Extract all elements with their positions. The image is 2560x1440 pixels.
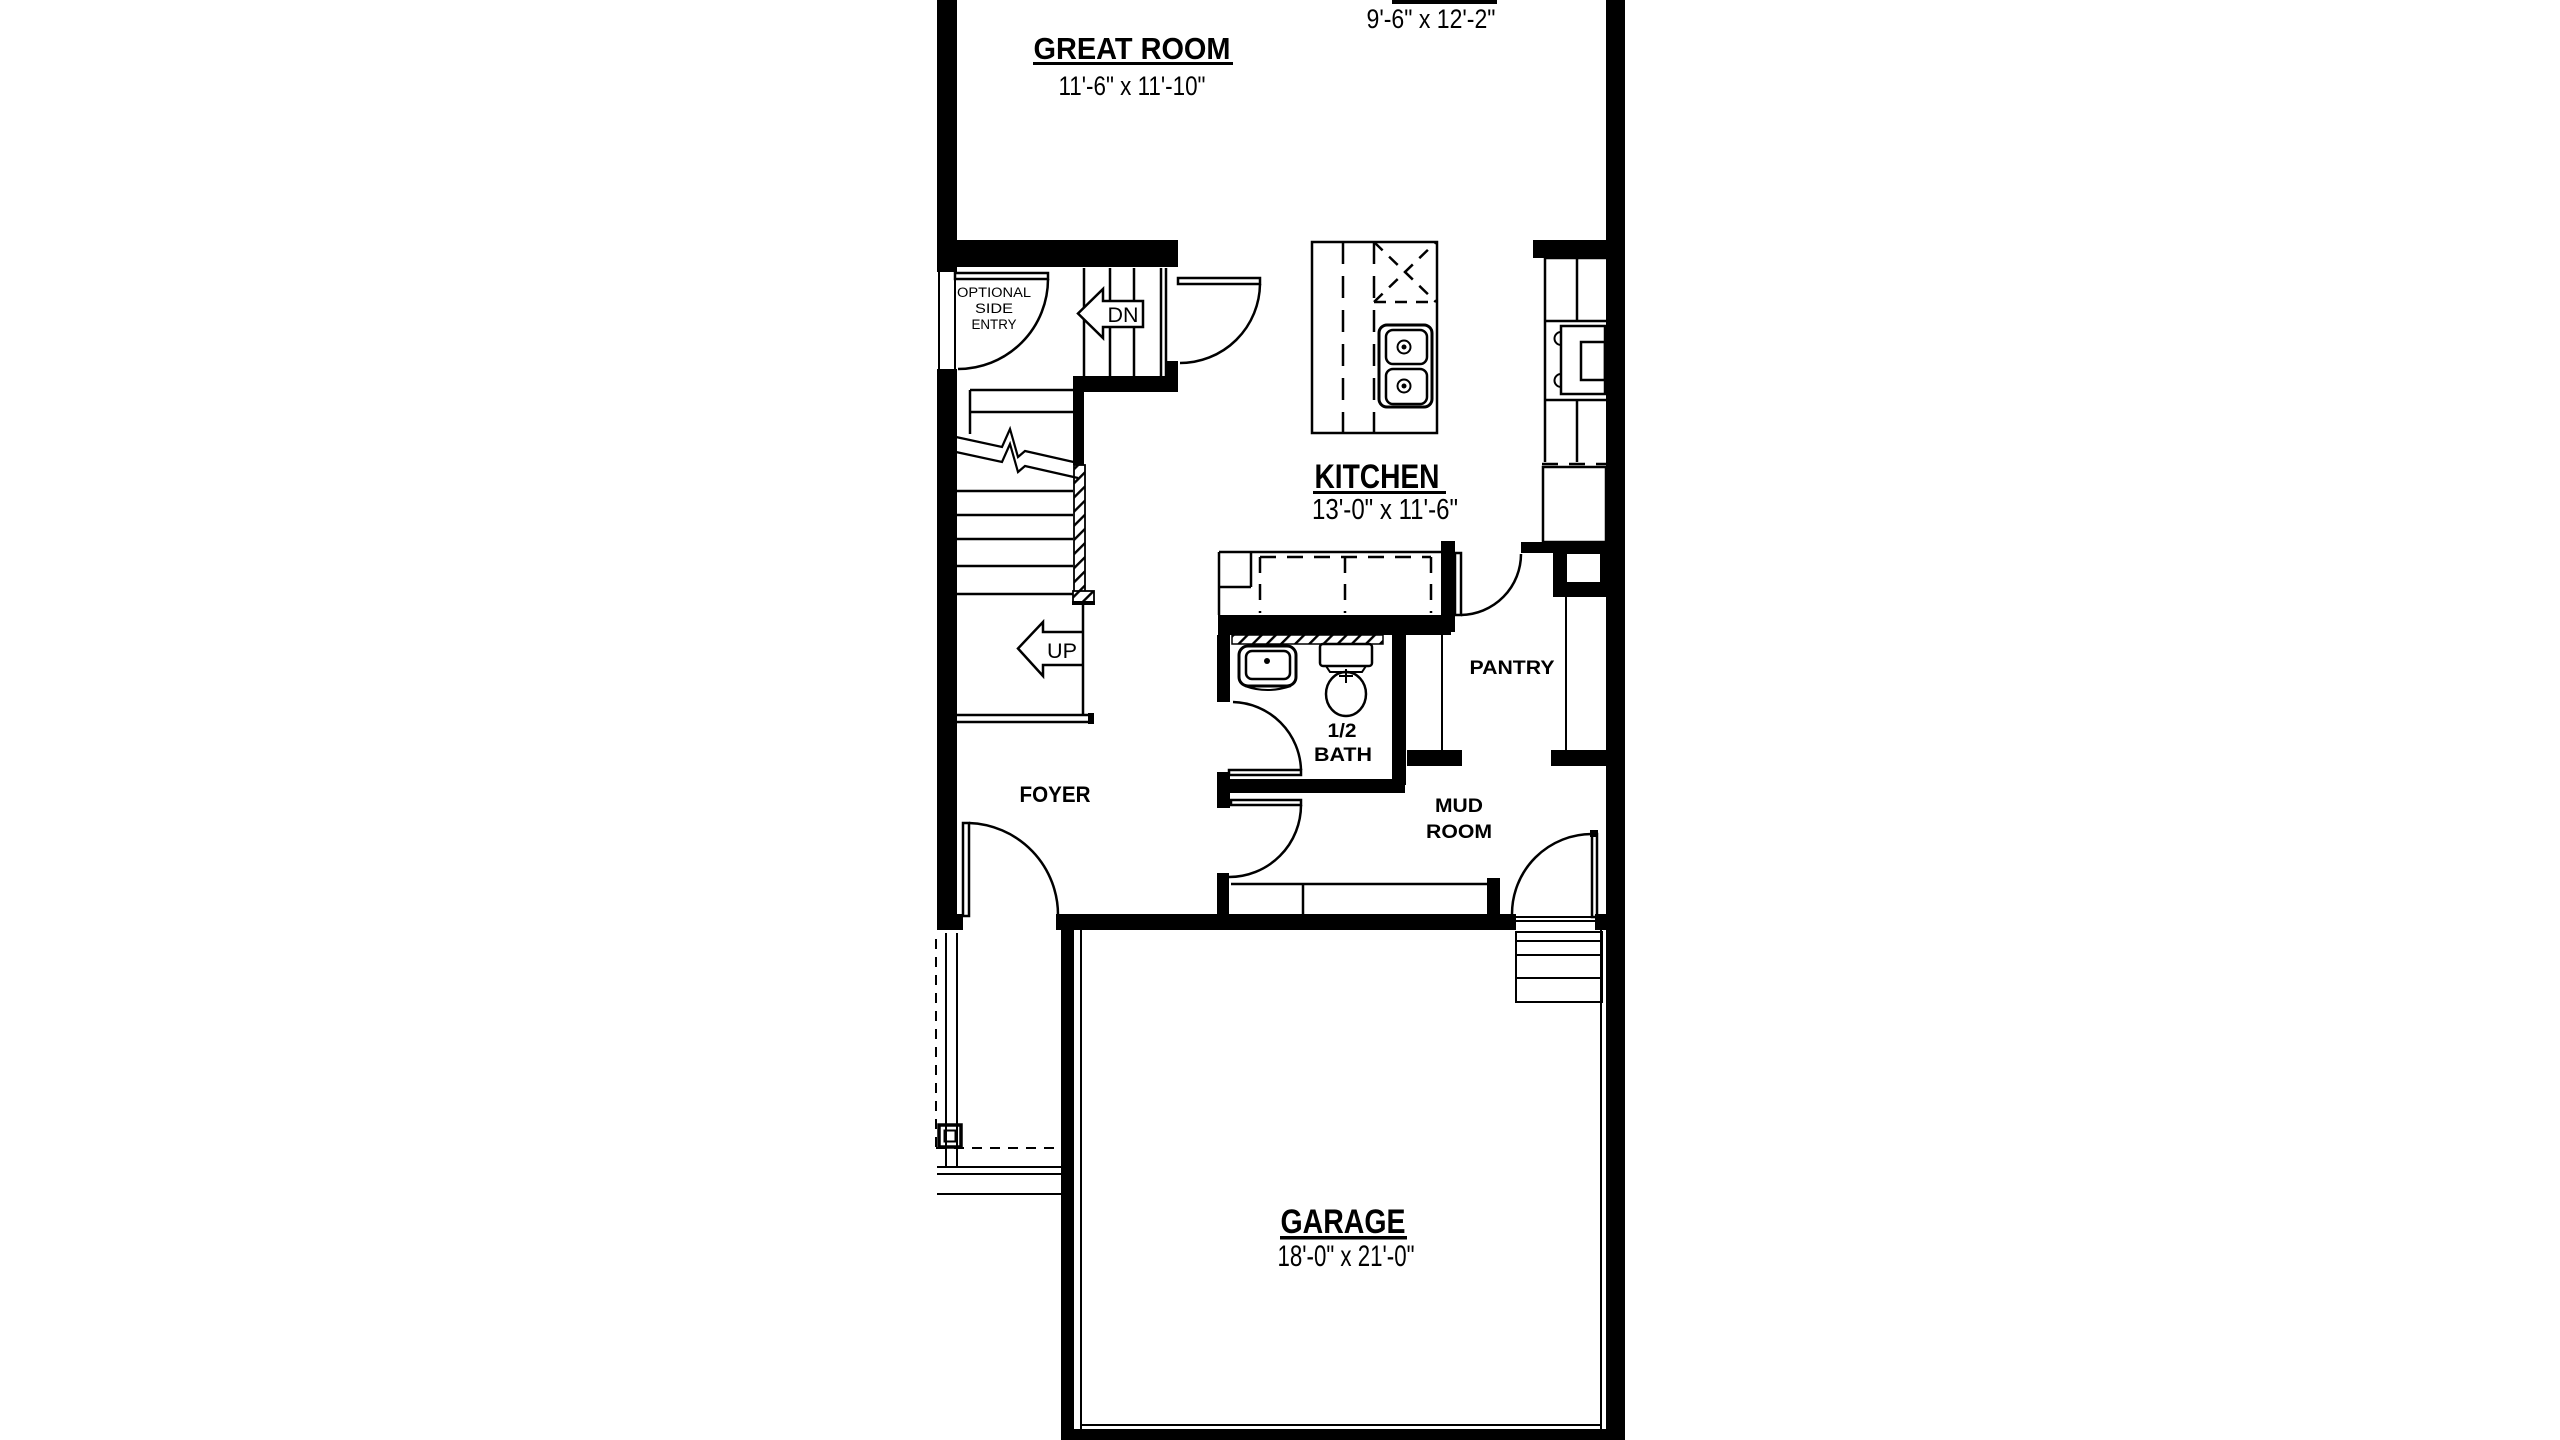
svg-text:DN: DN [1108, 304, 1139, 327]
svg-text:9'-6" x 12'-2": 9'-6" x 12'-2" [1367, 4, 1496, 34]
svg-text:11'-6" x 11'-10": 11'-6" x 11'-10" [1059, 71, 1206, 101]
svg-text:OPTIONAL: OPTIONAL [957, 285, 1032, 300]
svg-text:SIDE: SIDE [975, 301, 1013, 316]
svg-text:13'-0" x 11'-6": 13'-0" x 11'-6" [1312, 494, 1458, 526]
svg-text:FOYER: FOYER [1020, 782, 1091, 807]
svg-text:MUD: MUD [1435, 796, 1483, 817]
svg-text:18'-0" x 21'-0": 18'-0" x 21'-0" [1278, 1240, 1415, 1273]
svg-text:GREAT ROOM: GREAT ROOM [1034, 31, 1231, 66]
svg-text:ROOM: ROOM [1426, 822, 1492, 843]
svg-text:PANTRY: PANTRY [1470, 658, 1555, 679]
svg-text:GARAGE: GARAGE [1281, 1203, 1406, 1241]
svg-text:BATH: BATH [1314, 745, 1372, 766]
svg-text:ENTRY: ENTRY [972, 317, 1017, 332]
svg-text:KITCHEN: KITCHEN [1315, 458, 1440, 496]
svg-text:UP: UP [1047, 640, 1077, 663]
svg-text:1/2: 1/2 [1328, 721, 1357, 742]
